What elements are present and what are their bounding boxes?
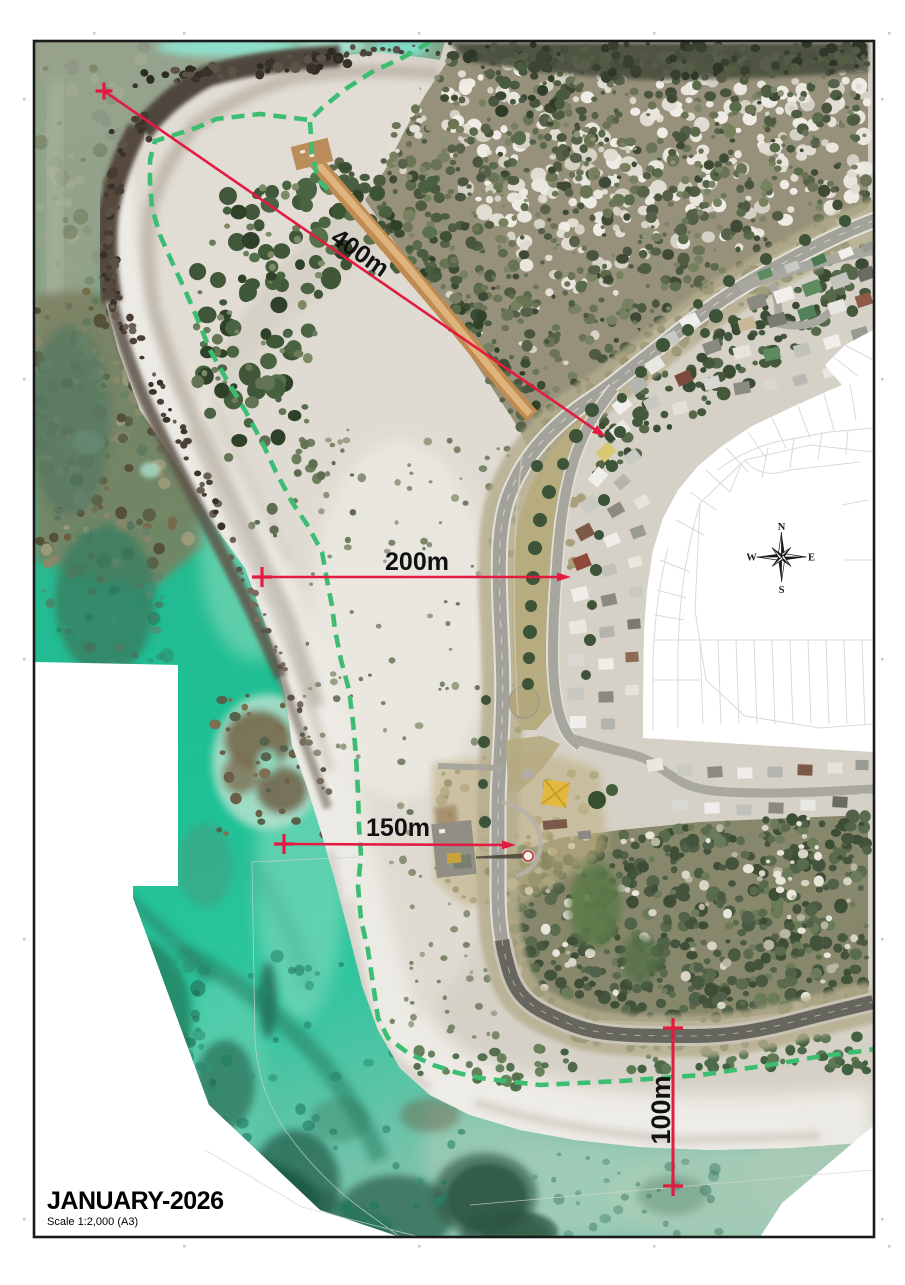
svg-text:JANUARY-2026: JANUARY-2026 [47,1187,223,1215]
svg-text:E: E [808,553,815,564]
svg-text:150m: 150m [366,814,430,842]
svg-text:S: S [779,585,785,596]
svg-text:N: N [778,522,786,533]
svg-text:Scale 1:2,000 (A3): Scale 1:2,000 (A3) [47,1216,138,1228]
svg-text:200m: 200m [385,548,449,576]
svg-text:W: W [746,553,757,564]
svg-text:100m: 100m [646,1075,676,1144]
